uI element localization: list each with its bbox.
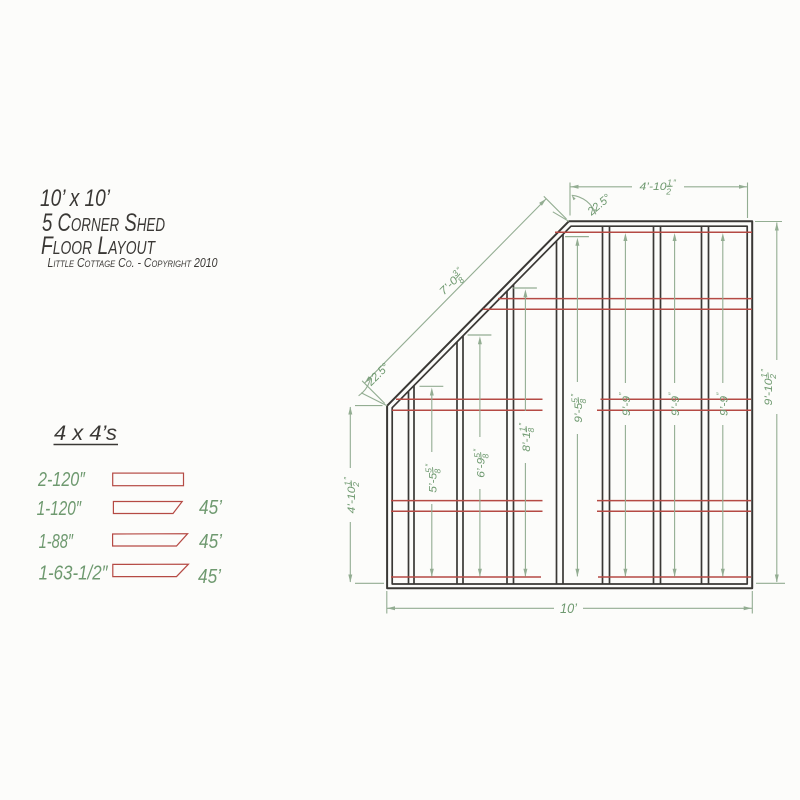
svg-text:6’-9: 6’-9 — [476, 458, 488, 478]
svg-text:2: 2 — [351, 482, 361, 488]
svg-text:1-88″: 1-88″ — [39, 531, 74, 553]
svg-text:9’-10: 9’-10 — [763, 378, 775, 406]
svg-text:10’ x 10’: 10’ x 10’ — [40, 185, 111, 212]
svg-text:8: 8 — [578, 399, 588, 404]
svg-text:2: 2 — [768, 374, 778, 380]
svg-text:9’-5: 9’-5 — [573, 402, 585, 423]
svg-text:8’-1: 8’-1 — [521, 432, 533, 452]
svg-text:8: 8 — [481, 454, 491, 459]
svg-text:9’-9: 9’-9 — [670, 396, 682, 416]
svg-text:4’-10: 4’-10 — [640, 181, 668, 193]
svg-text:2-120″: 2-120″ — [37, 469, 86, 491]
svg-text:4 x 4’s: 4 x 4’s — [54, 422, 118, 445]
svg-text:4’-10: 4’-10 — [346, 486, 358, 514]
svg-text:45’: 45’ — [198, 566, 221, 588]
svg-text:8: 8 — [433, 469, 443, 474]
svg-text:5’-5: 5’-5 — [427, 472, 439, 493]
svg-text:Little Cottage Co. - Copyright: Little Cottage Co. - Copyright 2010 — [48, 256, 218, 270]
svg-text:45’: 45’ — [199, 497, 222, 519]
svg-text:9’-9: 9’-9 — [621, 396, 633, 416]
svg-text:1-120″: 1-120″ — [37, 498, 82, 520]
svg-text:8: 8 — [526, 428, 536, 433]
svg-text:9’-9: 9’-9 — [718, 396, 730, 416]
svg-text:45’: 45’ — [199, 531, 222, 553]
svg-text:2: 2 — [665, 186, 671, 196]
svg-text:1-63-1/2″: 1-63-1/2″ — [39, 563, 109, 585]
svg-text:10’: 10’ — [560, 600, 578, 616]
